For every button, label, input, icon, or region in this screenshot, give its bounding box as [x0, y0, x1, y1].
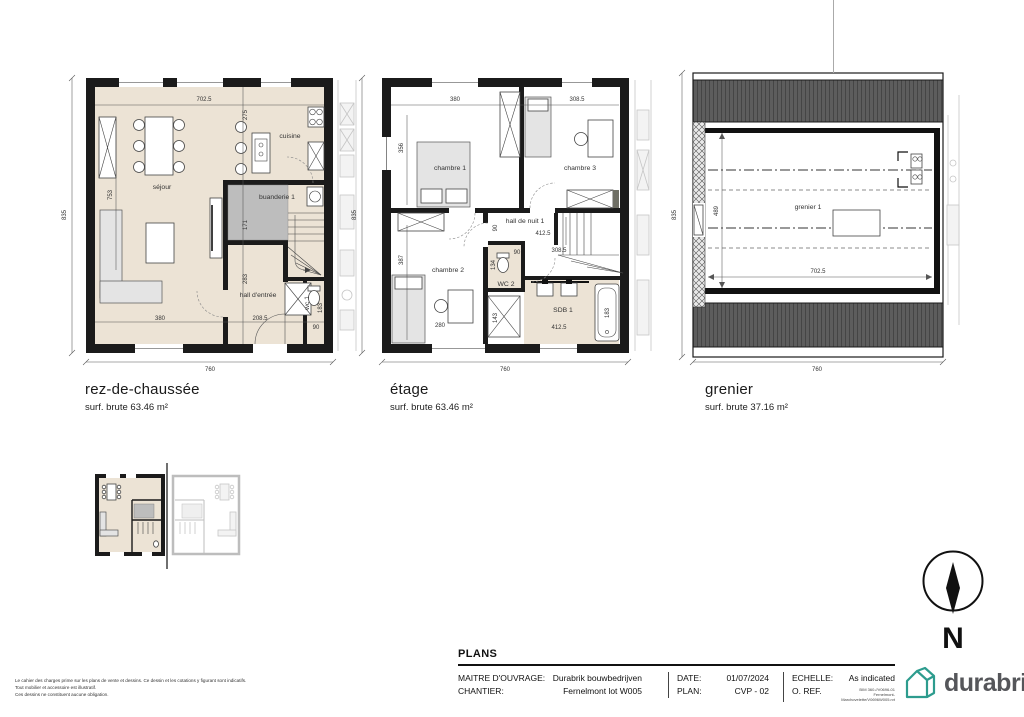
caption-etage: étage surf. brute 63.46 m²: [390, 381, 473, 413]
dim-380: 380: [155, 316, 166, 322]
stove: [308, 107, 324, 127]
scale-value: As indicated: [833, 672, 895, 685]
room-label-hall: hall d'entrée: [240, 292, 277, 299]
room-label-wc1: wc 1: [304, 296, 311, 311]
washing-machine: [307, 187, 323, 206]
durabrik-house-icon: [900, 664, 940, 702]
title-block-col2: DATE: 01/07/2024 PLAN: CVP - 02: [668, 672, 783, 698]
date-label: DATE:: [677, 672, 701, 685]
plan-surface-rdc: surf. brute 63.46 m²: [85, 402, 200, 413]
dim-183: 183: [318, 302, 324, 313]
plan-number-value: CVP - 02: [702, 685, 783, 698]
dim-380: 380: [450, 97, 461, 103]
cabinet: [99, 117, 116, 178]
site-boundary-line: [833, 0, 834, 73]
bed-chambre1: [417, 142, 470, 207]
plan-title-grenier: grenier: [705, 381, 788, 398]
north-label: N: [942, 622, 964, 653]
room-label-hall-de-nuit: hall de nuit 1: [506, 218, 545, 225]
wardrobe-chambre2: [398, 213, 444, 231]
dim-702-5: 702.5: [196, 97, 212, 103]
knee-wall-top: [705, 128, 935, 133]
disclaimer-line1: Le cahier des charges prime sur les plan…: [15, 677, 345, 684]
dim-308-5-top: 308.5: [569, 97, 585, 103]
dim-143: 143: [493, 312, 499, 323]
durabrik-wordmark: durabrik: [944, 669, 1024, 697]
dim-835: 835: [352, 209, 358, 220]
dim-702-5: 702.5: [810, 269, 826, 275]
caption-rdc: rez-de-chaussée surf. brute 63.46 m²: [85, 381, 200, 413]
north-needle-icon: [946, 562, 960, 614]
durabrik-logo-text: durabrik: [944, 669, 1024, 698]
dim-275: 275: [243, 109, 249, 120]
room-label-sdb: SDB 1: [553, 307, 573, 314]
dim-171: 171: [243, 219, 249, 230]
plan-number-label: PLAN:: [677, 685, 702, 698]
neighbor-unit-fragment: [635, 80, 651, 351]
bed-chambre2: [392, 275, 425, 343]
dim-489: 489: [714, 205, 720, 216]
floorplan-rez-de-chaussee: séjour cuisine buanderie 1 hall d'entrée…: [55, 55, 360, 375]
site-label: CHANTIER:: [458, 685, 504, 698]
dim-90: 90: [313, 325, 320, 331]
room-label-chambre3: chambre 3: [564, 165, 596, 172]
plan-title-rdc: rez-de-chaussée: [85, 381, 200, 398]
roof-slope-top: [693, 80, 943, 122]
disclaimer-line2: Tout mobilier et accessoire est illustra…: [15, 684, 345, 691]
owner-value: Durabrik bouwbedrijven: [545, 672, 668, 685]
toilet-wc2: [497, 253, 509, 273]
title-block-title: PLANS: [458, 648, 895, 666]
title-block-rows: MAITRE D'OUVRAGE: Durabrik bouwbedrijven…: [458, 672, 895, 702]
coffee-table: [146, 223, 174, 263]
room-label-chambre2: chambre 2: [432, 267, 464, 274]
disclaimer: Le cahier des charges prime sur les plan…: [15, 677, 345, 698]
dim-90-wc: 90: [514, 250, 521, 256]
plan-title-etage: étage: [390, 381, 473, 398]
dim-835: 835: [672, 209, 678, 220]
oref-value: BIM 360.//V0696-01 Fernelmont-Marchovele…: [822, 685, 895, 702]
dim-90-hall: 90: [493, 224, 499, 231]
dining-table: [134, 117, 185, 175]
oref-label: O. REF.: [792, 685, 822, 702]
dim-753: 753: [108, 189, 114, 200]
roof-slope-bottom: [693, 303, 943, 347]
dim-835: 835: [62, 209, 68, 220]
dim-412-5-sdb: 412.5: [551, 325, 567, 331]
north-arrow: N: [905, 548, 995, 653]
knee-wall-bottom: [705, 288, 935, 294]
tv-cabinet: [210, 198, 222, 258]
attic-hatch: [833, 210, 880, 236]
dim-760: 760: [205, 367, 216, 373]
dim-387: 387: [399, 254, 405, 265]
room-label-cuisine: cuisine: [279, 133, 300, 140]
room-label-buanderie: buanderie 1: [259, 194, 295, 201]
dim-283: 283: [243, 273, 249, 284]
dim-760: 760: [812, 367, 823, 373]
wall-right: [934, 128, 940, 294]
key-plan-active-unit: [97, 473, 163, 557]
floorplan-grenier: 835 760 489 702.5 grenier 1: [660, 55, 965, 375]
dim-183: 183: [605, 307, 611, 318]
durabrik-logo: durabrik: [900, 664, 1024, 702]
title-block-col3: ECHELLE: As indicated O. REF. BIM 360.//…: [783, 672, 895, 702]
plan-sheet: séjour cuisine buanderie 1 hall d'entrée…: [0, 0, 1024, 717]
disclaimer-line3: Ces dessins ne constituent aucune obliga…: [15, 691, 345, 698]
dim-308-5-mid: 308.5: [551, 248, 567, 254]
dim-280: 280: [435, 323, 446, 329]
room-label-chambre1: chambre 1: [434, 165, 466, 172]
room-label-wc2: WC 2: [498, 281, 515, 288]
owner-label: MAITRE D'OUVRAGE:: [458, 672, 545, 685]
title-block-col1: MAITRE D'OUVRAGE: Durabrik bouwbedrijven…: [458, 672, 668, 698]
date-value: 01/07/2024: [701, 672, 783, 685]
oref-line2: Fernelmont-Marchovelette/V0696W005.rvt: [822, 692, 895, 702]
plan-surface-grenier: surf. brute 37.16 m²: [705, 402, 788, 413]
caption-grenier: grenier surf. brute 37.16 m²: [705, 381, 788, 413]
title-block: PLANS MAITRE D'OUVRAGE: Durabrik bouwbed…: [458, 648, 895, 702]
floorplan-etage: chambre 1 chambre 3 chambre 2 hall de nu…: [345, 55, 655, 375]
attic-door: [693, 203, 705, 237]
dim-412-5-hall: 412.5: [535, 231, 551, 237]
bed-chambre3: [525, 97, 551, 157]
room-label-grenier1: grenier 1: [795, 204, 822, 211]
kitchen-cabinet: [308, 142, 324, 170]
dim-760: 760: [500, 367, 511, 373]
neighbor-unit-fragment: [947, 95, 959, 325]
site-value: Fernelmont lot W005: [504, 685, 668, 698]
key-plan: [80, 460, 260, 572]
key-plan-neighbor-unit: [173, 476, 239, 554]
dim-356: 356: [399, 142, 405, 153]
plan-surface-etage: surf. brute 63.46 m²: [390, 402, 473, 413]
dim-134: 134: [491, 259, 497, 270]
dim-208-5: 208.5: [252, 316, 268, 322]
wardrobe-chambre3: [567, 190, 619, 208]
room-label-sejour: séjour: [153, 184, 172, 191]
wardrobe-mid: [500, 92, 520, 157]
scale-label: ECHELLE:: [792, 672, 833, 685]
